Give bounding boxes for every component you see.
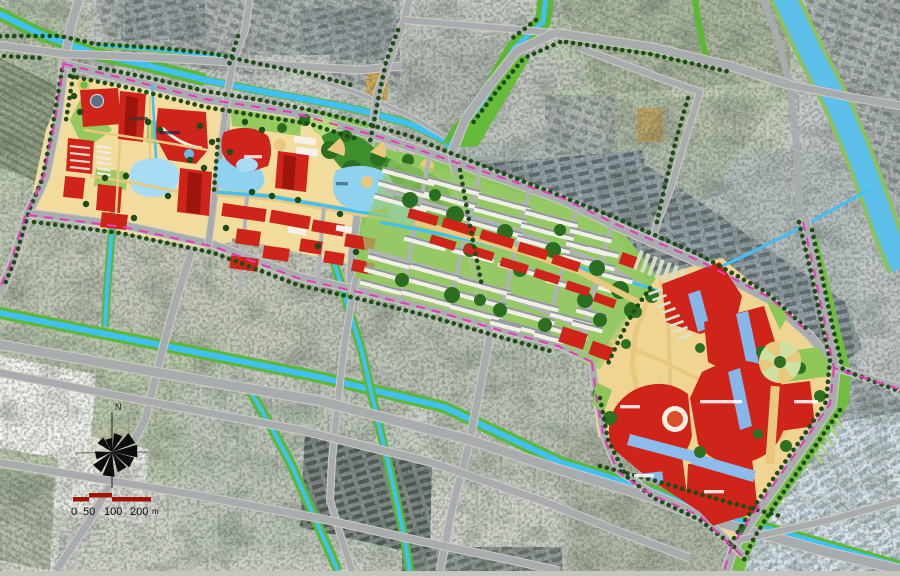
- svg-text:50: 50: [83, 506, 95, 518]
- svg-text:m: m: [152, 507, 159, 516]
- svg-text:0: 0: [71, 506, 77, 518]
- svg-text:N: N: [115, 402, 122, 412]
- svg-text:200: 200: [130, 506, 148, 518]
- svg-text:100: 100: [104, 506, 122, 518]
